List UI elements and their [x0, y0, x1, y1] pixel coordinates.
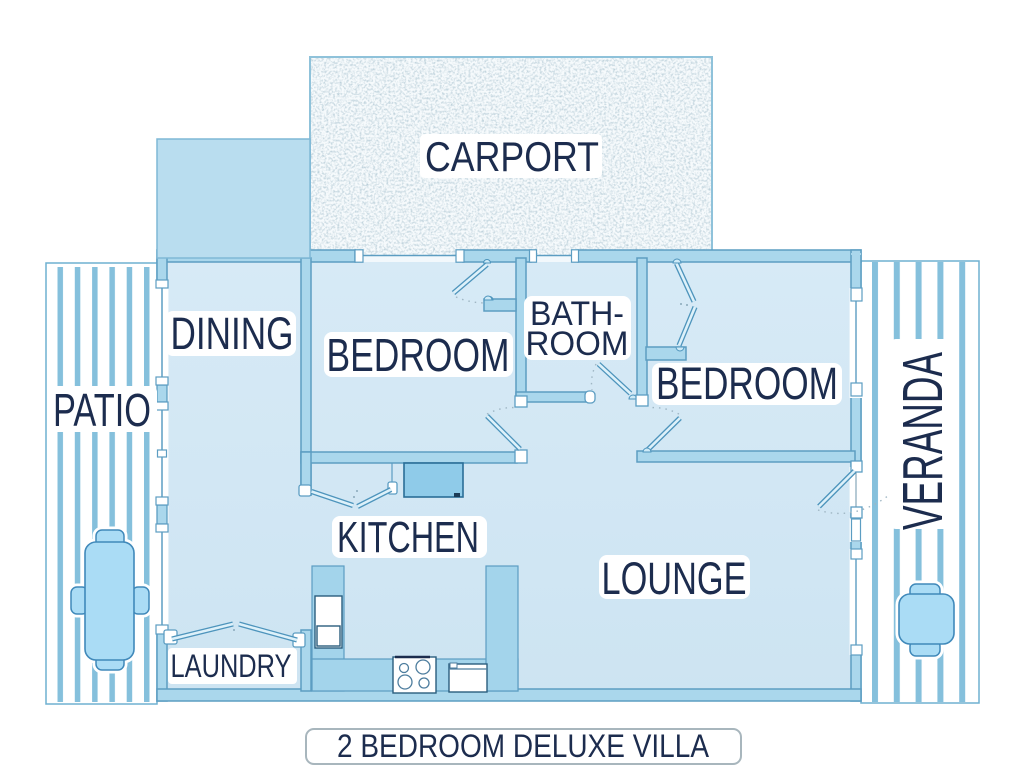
svg-text:ROOM: ROOM — [526, 325, 629, 363]
svg-text:LOUNGE: LOUNGE — [602, 553, 747, 604]
svg-text:PATIO: PATIO — [53, 384, 151, 436]
svg-text:LAUNDRY: LAUNDRY — [171, 648, 292, 684]
svg-text:VERANDA: VERANDA — [891, 352, 955, 530]
svg-text:CARPORT: CARPORT — [425, 133, 599, 180]
svg-text:BEDROOM: BEDROOM — [327, 329, 510, 381]
svg-text:KITCHEN: KITCHEN — [337, 513, 479, 562]
svg-text:DINING: DINING — [171, 308, 294, 359]
svg-text:2 BEDROOM DELUXE VILLA: 2 BEDROOM DELUXE VILLA — [337, 728, 710, 764]
svg-text:BEDROOM: BEDROOM — [656, 358, 838, 409]
